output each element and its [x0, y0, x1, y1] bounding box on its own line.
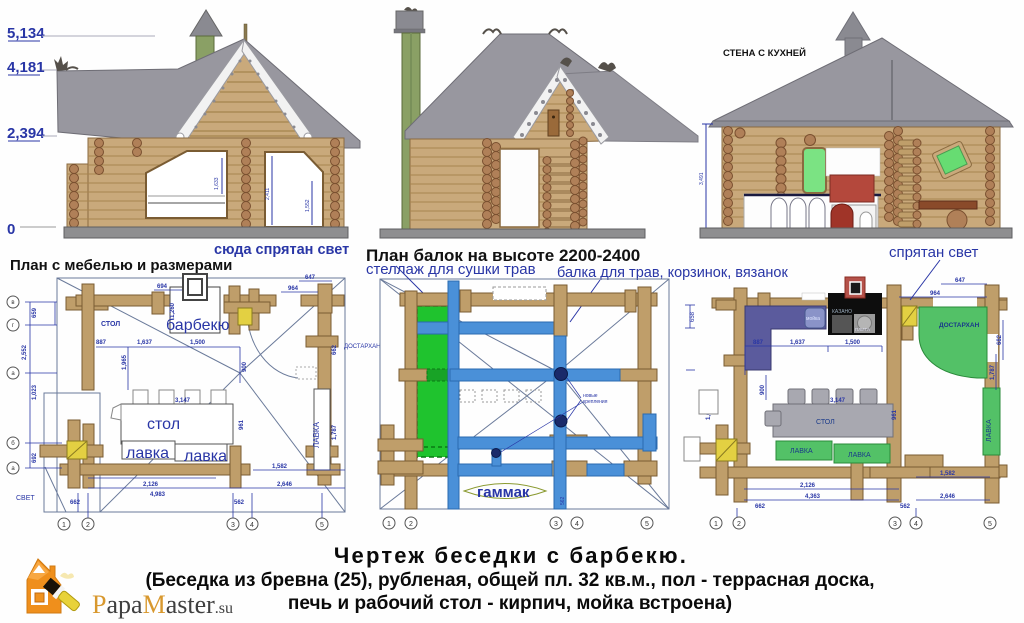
svg-text:647: 647: [955, 278, 966, 284]
svg-text:3,147: 3,147: [175, 398, 191, 404]
svg-text:ЛАВКА: ЛАВКА: [848, 452, 871, 459]
svg-text:658: 658: [690, 311, 696, 322]
svg-text:спрятан свет: спрятан свет: [889, 244, 979, 261]
svg-text:1,787: 1,787: [332, 424, 338, 440]
svg-text:3,491: 3,491: [699, 172, 705, 185]
svg-text:659: 659: [32, 307, 38, 318]
svg-text:4,181: 4,181: [7, 59, 45, 76]
svg-text:1,023: 1,023: [32, 384, 38, 400]
svg-text:2,646: 2,646: [277, 482, 293, 488]
svg-text:СТОЛ: СТОЛ: [816, 419, 835, 426]
svg-text:2: 2: [86, 522, 90, 529]
svg-text:4,983: 4,983: [150, 492, 166, 498]
svg-text:4: 4: [250, 522, 254, 529]
svg-text:1,787: 1,787: [990, 364, 996, 380]
svg-text:1: 1: [62, 522, 66, 529]
svg-text:964: 964: [288, 286, 299, 292]
svg-text:ЛАВКА: ЛАВКА: [986, 419, 993, 442]
svg-text:5,134: 5,134: [7, 25, 45, 42]
svg-text:1,637: 1,637: [790, 340, 806, 346]
svg-text:в: в: [11, 300, 14, 306]
svg-text:ЛАВКА: ЛАВКА: [312, 421, 321, 448]
svg-text:ДОСТАРХАН: ДОСТАРХАН: [939, 322, 980, 329]
svg-text:3: 3: [893, 521, 897, 528]
svg-text:2,394: 2,394: [7, 125, 45, 142]
svg-text:4: 4: [575, 521, 579, 528]
svg-text:4: 4: [914, 521, 918, 528]
svg-text:5: 5: [988, 521, 992, 528]
svg-text:2,126: 2,126: [800, 483, 816, 489]
svg-text:900: 900: [760, 384, 766, 395]
svg-text:562: 562: [560, 496, 566, 505]
svg-text:СТОЛ: СТОЛ: [101, 321, 120, 328]
svg-text:1: 1: [714, 521, 718, 528]
svg-text:1,582: 1,582: [940, 471, 956, 477]
svg-text:961: 961: [239, 419, 245, 430]
svg-text:961: 961: [892, 409, 898, 420]
svg-text:1,552: 1,552: [305, 199, 311, 212]
svg-text:5: 5: [645, 521, 649, 528]
svg-text:стеллаж для сушки трав: стеллаж для сушки трав: [366, 261, 536, 278]
svg-text:5: 5: [320, 522, 324, 529]
svg-text:СВЕТ: СВЕТ: [16, 495, 35, 502]
svg-text:3,147: 3,147: [830, 398, 846, 404]
svg-text:562: 562: [234, 500, 245, 506]
svg-text:ДОСТАРХАН: ДОСТАРХАН: [344, 344, 380, 350]
svg-text:1: 1: [387, 521, 391, 528]
svg-text:682: 682: [997, 334, 1003, 345]
svg-text:964: 964: [930, 291, 941, 297]
svg-text:662: 662: [70, 500, 81, 506]
svg-text:ПЛИТА: ПЛИТА: [855, 327, 870, 332]
svg-text:692: 692: [32, 452, 38, 463]
svg-text:б: б: [11, 441, 15, 447]
svg-text:1,633: 1,633: [214, 177, 220, 190]
svg-text:1,965: 1,965: [122, 354, 128, 370]
svg-text:1,582: 1,582: [272, 464, 288, 470]
svg-text:887: 887: [753, 340, 764, 346]
svg-text:662: 662: [332, 344, 338, 355]
svg-text:900: 900: [242, 361, 248, 372]
svg-text:662: 662: [755, 504, 766, 510]
svg-text:647: 647: [305, 275, 316, 281]
svg-text:ЛАВКА: ЛАВКА: [790, 448, 813, 455]
svg-text:4,363: 4,363: [805, 494, 821, 500]
svg-text:2,126: 2,126: [143, 482, 159, 488]
svg-text:2,552: 2,552: [22, 344, 28, 360]
svg-text:2,646: 2,646: [940, 494, 956, 500]
svg-text:План с мебелью и размерами: План с мебелью и размерами: [10, 257, 232, 274]
svg-text:1,260: 1,260: [170, 302, 176, 318]
svg-text:мойка: мойка: [806, 315, 820, 322]
svg-text:2: 2: [737, 521, 741, 528]
svg-text:(Беседка из бревна (25), рубле: (Беседка из бревна (25), рубленая, общей…: [145, 570, 874, 591]
svg-text:барбекю: барбекю: [166, 317, 229, 334]
svg-text:крепления: крепления: [583, 399, 608, 405]
svg-text:стол: стол: [147, 416, 180, 433]
svg-text:КАЗАНО: КАЗАНО: [832, 309, 852, 315]
svg-text:694: 694: [157, 284, 168, 290]
svg-text:2: 2: [409, 521, 413, 528]
svg-text:печь и рабочий стол - кирпич,: печь и рабочий стол - кирпич, мойка встр…: [288, 593, 732, 614]
svg-text:2,411: 2,411: [265, 188, 271, 200]
svg-text:сюда спрятан свет: сюда спрятан свет: [214, 242, 349, 258]
svg-text:Чертеж беседки с барбекю.: Чертеж беседки с барбекю.: [334, 543, 688, 568]
svg-text:лавка: лавка: [126, 445, 169, 462]
svg-text:1,500: 1,500: [190, 340, 206, 346]
svg-text:гаммак: гаммак: [477, 484, 530, 501]
svg-text:3: 3: [554, 521, 558, 528]
svg-text:PapaMaster.su: PapaMaster.su: [92, 590, 233, 619]
svg-text:3: 3: [231, 522, 235, 529]
svg-text:лавка: лавка: [184, 448, 227, 465]
svg-text:СТЕНА С КУХНЕЙ: СТЕНА С КУХНЕЙ: [723, 47, 806, 59]
svg-text:1,500: 1,500: [845, 340, 861, 346]
svg-text:887: 887: [96, 340, 107, 346]
svg-text:562: 562: [900, 504, 911, 510]
svg-text:1,637: 1,637: [137, 340, 153, 346]
svg-text:0: 0: [7, 221, 15, 238]
